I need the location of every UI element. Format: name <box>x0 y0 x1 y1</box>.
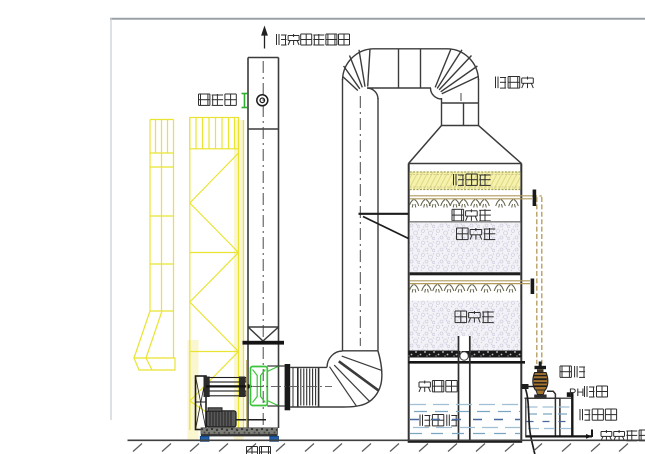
svg-text:PH: PH <box>569 387 584 399</box>
